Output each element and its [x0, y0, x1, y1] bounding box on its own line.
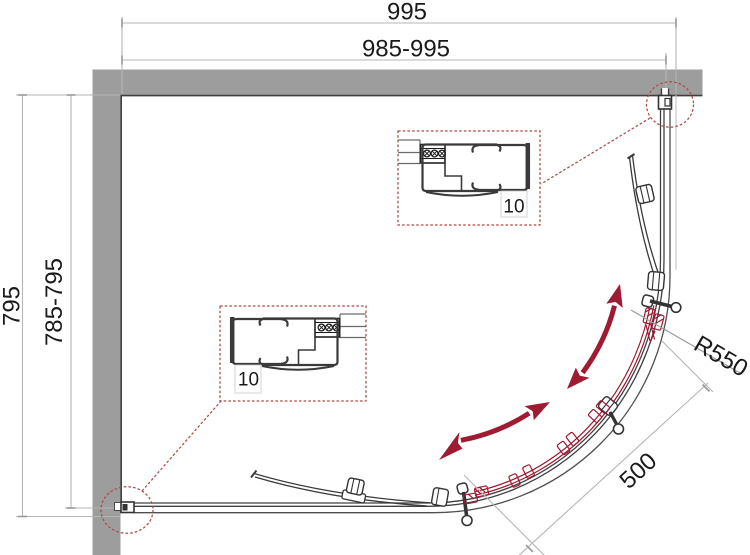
svg-text:10: 10 — [503, 197, 524, 218]
svg-text:785-795: 785-795 — [41, 258, 68, 346]
svg-text:995: 995 — [387, 0, 427, 26]
svg-text:10: 10 — [238, 370, 259, 391]
svg-text:985-995: 985-995 — [362, 36, 450, 63]
svg-text:795: 795 — [0, 286, 26, 326]
